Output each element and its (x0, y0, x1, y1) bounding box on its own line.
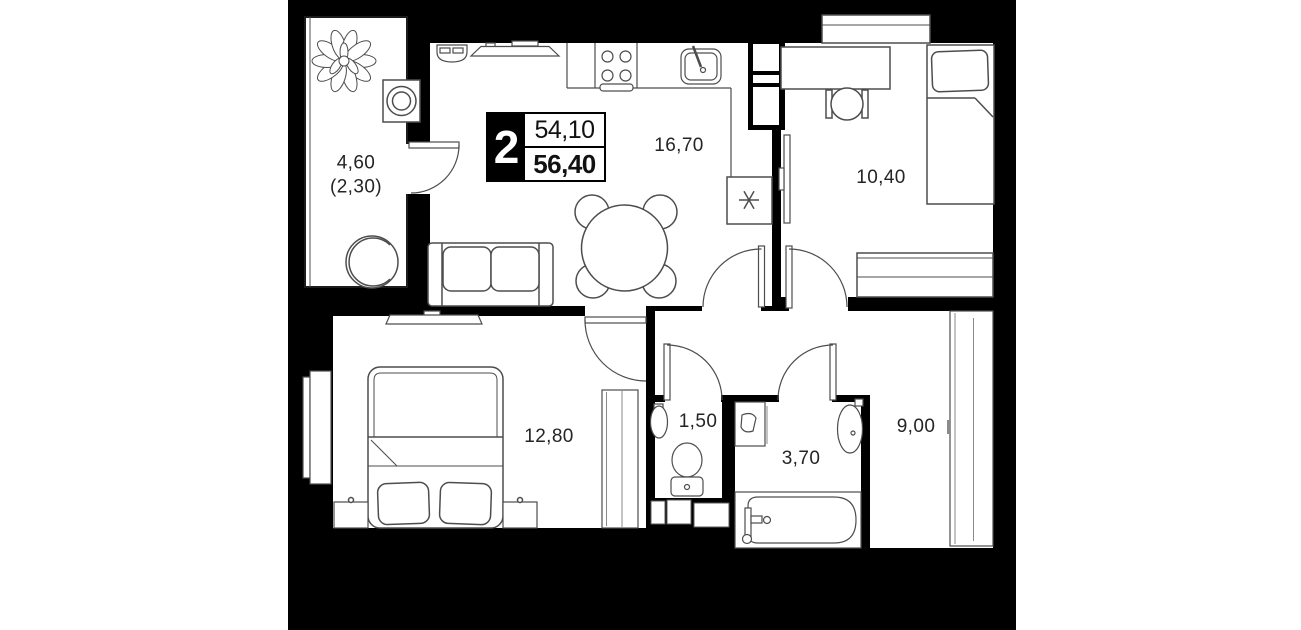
label-toilet-area: 1,50 (679, 410, 718, 434)
room-bathroom (735, 402, 861, 548)
door-opening-kitchen (702, 303, 761, 313)
label-kitchen-living-area: 16,70 (654, 134, 704, 158)
total-area-value: 56,40 (525, 148, 604, 180)
label-bedroom-master-area: 12,80 (524, 425, 574, 449)
label-balcony-area: 4,60 (2,30) (330, 151, 382, 199)
label-bedroom-small-area: 10,40 (856, 166, 906, 190)
rooms-count: 2 (488, 114, 525, 180)
door-opening-bathroom (779, 395, 832, 403)
label-bathroom-area: 3,70 (782, 447, 821, 471)
room-hallway-upper (655, 311, 993, 395)
door-opening-bedroom-small (789, 295, 848, 313)
floorplan-viewer: 4,60 (2,30) 16,70 10,40 12,80 1,50 3,70 … (0, 0, 1301, 630)
label-hallway-area: 9,00 (897, 415, 936, 439)
door-opening-toilet (665, 395, 721, 403)
apartment-area-badge: 2 54,10 56,40 (486, 112, 606, 182)
door-opening-bedroom-master (585, 304, 646, 318)
living-area-value: 54,10 (525, 114, 604, 148)
balcony-area-full: 4,60 (330, 151, 382, 175)
door-opening-balcony (406, 144, 432, 194)
balcony-area-coeff: (2,30) (330, 175, 382, 199)
room-bedroom-master (333, 316, 646, 528)
